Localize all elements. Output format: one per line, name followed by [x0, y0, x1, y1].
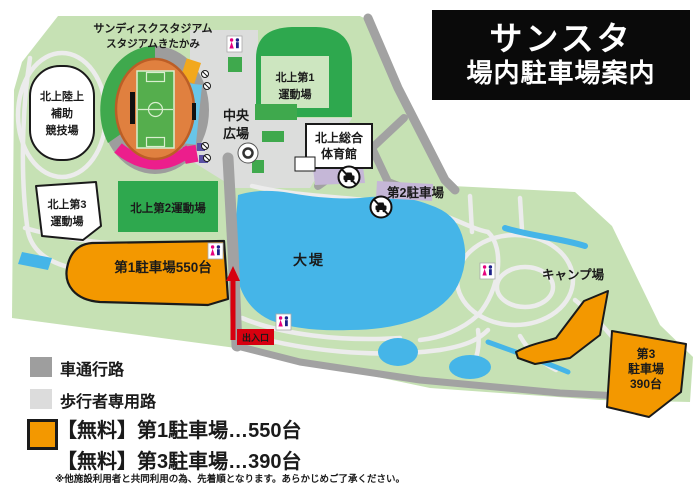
- field3-label-line2: 運動場: [51, 214, 84, 228]
- gym-label-line1: 北上総合: [315, 130, 364, 145]
- parking3-label-line2: 駐車場: [628, 361, 664, 376]
- gate-label: 出入口: [242, 332, 269, 343]
- legend-free-parking3-label: 【無料】第3駐車場…390台: [57, 445, 302, 474]
- no-parking-icon: [339, 167, 360, 188]
- stadium-pitch: [137, 71, 174, 148]
- legend-road-swatch: [30, 357, 52, 377]
- small-building: [295, 157, 315, 171]
- parking3-label-line1: 第3: [637, 346, 656, 361]
- fountain: [238, 143, 258, 163]
- stadium-name-line1: サンディスクスタジアム: [93, 21, 212, 35]
- legend-free-parking-swatch: [27, 419, 58, 450]
- page-title: サンスタ: [489, 21, 632, 57]
- restroom-icon: [208, 243, 223, 259]
- plaza-label-line1: 中央: [223, 108, 250, 123]
- camp-label: キャンプ場: [542, 267, 605, 282]
- parking3-label-line3: 390台: [630, 376, 662, 391]
- sub-track-label-line3: 競技場: [46, 123, 79, 137]
- legend-path-swatch: [30, 389, 52, 409]
- pond-otsutsumi: [236, 191, 466, 330]
- gym-label-line2: 体育館: [321, 146, 357, 161]
- restroom-icon: [480, 263, 495, 279]
- parking2-label: 第2駐車場: [387, 185, 444, 200]
- sub-track-label-line1: 北上陸上: [40, 89, 84, 103]
- stadium-name-line2: スタジアムきたかみ: [106, 38, 200, 50]
- field2-label: 北上第2運動場: [130, 201, 206, 215]
- page-subtitle: 場内駐車場案内: [466, 58, 655, 89]
- legend-free-parking1-label: 【無料】第1駐車場…550台: [57, 414, 302, 443]
- sub-track-label-line2: 補助: [50, 106, 73, 120]
- title-box: サンスタ 場内駐車場案内: [432, 10, 690, 100]
- restroom-icon: [227, 36, 242, 52]
- field3-label-line1: 北上第3: [47, 197, 86, 211]
- parking1-label: 第1駐車場550台: [114, 259, 212, 275]
- field3-area: [36, 182, 101, 240]
- legend-road-label: 車通行路: [60, 356, 124, 380]
- stadium: [100, 46, 210, 174]
- field1-label-line1: 北上第1: [275, 70, 314, 84]
- field1-label-line2: 運動場: [279, 87, 312, 101]
- legend-path-label: 歩行者専用路: [60, 388, 156, 412]
- pond-label: 大堤: [293, 252, 325, 268]
- parking-guide-map: 出入口 サンディスクスタジアム スタジアムきたかみ 北上陸上 補助 競技場 北上…: [0, 0, 698, 500]
- legend-note: ※他施設利用者と共同利用の為、先着順となります。あらかじめご了承ください。: [55, 471, 405, 485]
- restroom-icon: [276, 314, 291, 330]
- plaza-label-line2: 広場: [223, 126, 249, 141]
